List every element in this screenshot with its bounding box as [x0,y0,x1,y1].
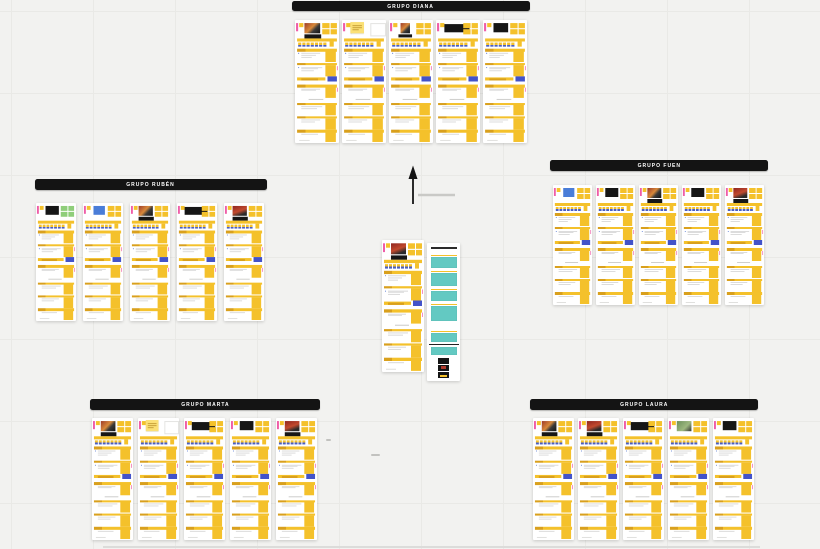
sticky-note[interactable] [155,212,161,217]
sticky-note[interactable] [709,229,718,241]
sticky-note[interactable] [513,65,523,77]
sticky-note[interactable] [205,310,215,320]
sticky-note[interactable] [330,29,337,34]
sticky-note[interactable] [656,421,662,426]
testing-board[interactable] [533,418,574,540]
sticky-note[interactable] [117,427,123,432]
teal-idea-card[interactable] [431,333,457,342]
sticky-note[interactable] [372,86,382,98]
sticky-note[interactable] [205,267,215,278]
sticky-note[interactable] [325,65,335,77]
sticky-note[interactable] [111,232,121,243]
sticky-note[interactable] [424,29,431,34]
sticky-note[interactable] [64,232,74,243]
sticky-note[interactable] [738,427,744,432]
sticky-note[interactable] [738,421,744,426]
sticky-note[interactable] [713,194,719,199]
teal-idea-card[interactable] [431,273,457,286]
screenshot-thumb[interactable] [723,421,737,430]
sticky-note[interactable] [701,421,707,426]
blue-card[interactable] [653,474,662,479]
testing-board[interactable] [276,418,317,540]
group-header[interactable]: GRUPO LAURA [530,399,758,410]
screenshot-thumb[interactable] [240,421,254,430]
sticky-note[interactable] [752,281,761,293]
sticky-note[interactable] [603,421,609,426]
sticky-note[interactable] [701,427,707,432]
sticky-note[interactable] [68,212,74,217]
sticky-note[interactable] [252,267,262,278]
blue-card[interactable] [710,240,719,245]
sticky-note[interactable] [120,448,130,460]
sticky-note[interactable] [693,421,699,426]
teal-idea-card[interactable] [431,306,457,321]
sticky-note[interactable] [68,206,74,211]
sticky-note[interactable] [117,421,123,426]
sticky-note[interactable] [217,427,223,432]
sticky-note[interactable] [510,29,517,34]
sticky-note[interactable] [606,528,616,538]
sticky-note[interactable] [252,232,262,243]
sticky-note[interactable] [713,188,719,193]
sticky-note[interactable] [111,310,121,320]
sticky-note[interactable] [252,246,262,257]
sticky-note[interactable] [202,212,208,217]
sticky-note[interactable] [561,528,571,538]
screenshot-thumb[interactable] [493,23,508,32]
screenshot-thumb[interactable] [587,421,602,431]
sticky-note[interactable] [561,448,571,460]
sticky-note[interactable] [419,50,429,62]
sticky-note[interactable] [741,462,751,474]
testing-board[interactable] [596,185,635,305]
sticky-note[interactable] [566,427,572,432]
sticky-note[interactable] [258,484,268,496]
blue-card[interactable] [743,474,752,479]
sticky-note[interactable] [258,515,268,527]
testing-board[interactable] [725,185,764,305]
sticky-note[interactable] [408,243,415,249]
sticky-note[interactable] [513,50,523,62]
sticky-note[interactable] [463,23,470,28]
sticky-note[interactable] [301,427,307,432]
sticky-note[interactable] [209,212,215,217]
sticky-note[interactable] [693,427,699,432]
sticky-note[interactable] [258,501,268,512]
sticky-note[interactable] [709,281,718,293]
sticky-note[interactable] [510,23,517,28]
sticky-note[interactable] [648,421,654,426]
sticky-note[interactable] [217,421,223,426]
sticky-note[interactable] [209,427,215,432]
sticky-note[interactable] [623,250,632,262]
sticky-note[interactable] [416,29,423,34]
sticky-note[interactable] [64,246,74,257]
sticky-note[interactable] [584,188,590,193]
sticky-note[interactable] [304,501,314,512]
group-header[interactable]: GRUPO RUBÉN [35,179,267,190]
blue-card[interactable] [260,474,269,479]
sticky-note[interactable] [325,118,335,130]
sticky-note[interactable] [561,515,571,527]
sticky-note[interactable] [205,232,215,243]
testing-board[interactable] [389,20,433,143]
blue-card[interactable] [698,474,707,479]
sticky-note[interactable] [577,188,583,193]
blue-card[interactable] [468,77,478,82]
screenshot-thumb[interactable] [285,421,300,431]
teal-idea-card[interactable] [431,347,457,355]
blue-card[interactable] [608,474,617,479]
sticky-note[interactable] [64,267,74,278]
screenshot-thumb[interactable] [542,421,557,431]
testing-board[interactable] [578,418,619,540]
sticky-note[interactable] [111,246,121,257]
sticky-note[interactable] [606,462,616,474]
testing-board[interactable] [295,20,339,143]
sticky-note[interactable] [258,528,268,538]
sticky-note[interactable] [372,65,382,77]
group-header[interactable]: GRUPO MARTA [90,399,320,410]
sticky-note[interactable] [513,131,523,141]
sticky-note[interactable] [651,462,661,474]
sticky-note[interactable] [666,267,675,278]
sticky-note[interactable] [212,448,222,460]
testing-board[interactable] [553,185,592,305]
sticky-note[interactable] [372,131,382,141]
screenshot-thumb[interactable] [391,243,406,254]
sticky-note[interactable] [115,212,121,217]
sticky-note[interactable] [561,484,571,496]
sticky-note[interactable] [606,484,616,496]
testing-board[interactable] [436,20,480,143]
testing-board[interactable] [668,418,709,540]
sticky-note[interactable] [580,215,589,227]
sticky-note[interactable] [61,212,67,217]
sticky-note[interactable] [411,288,421,301]
sticky-note[interactable] [166,484,176,496]
screenshot-thumb[interactable] [691,188,704,197]
sticky-note[interactable] [411,359,421,370]
testing-board[interactable] [83,203,123,321]
sticky-note[interactable] [513,86,523,98]
sticky-note[interactable] [558,427,564,432]
sticky-note[interactable] [706,194,712,199]
sticky-note[interactable] [463,29,470,34]
sticky-note[interactable] [249,212,255,217]
sticky-note[interactable] [158,246,168,257]
sticky-note[interactable] [258,448,268,460]
sticky-note[interactable] [696,462,706,474]
sticky-note[interactable] [561,462,571,474]
sticky-note[interactable] [620,194,626,199]
testing-board[interactable] [184,418,225,540]
sticky-note[interactable] [255,421,261,426]
sticky-note[interactable] [162,206,168,211]
sticky-note[interactable] [752,250,761,262]
sticky-note[interactable] [666,294,675,304]
sticky-note[interactable] [419,86,429,98]
sticky-note[interactable] [249,206,255,211]
sticky-note[interactable] [258,462,268,474]
sticky-note[interactable] [666,229,675,241]
testing-board[interactable] [713,418,754,540]
sticky-note[interactable] [416,23,423,28]
sticky-note[interactable] [419,118,429,130]
sticky-note[interactable] [325,50,335,62]
blue-card[interactable] [214,474,223,479]
sticky-note[interactable] [322,23,329,28]
sticky-note[interactable] [741,448,751,460]
sticky-note[interactable] [166,515,176,527]
sticky-note[interactable] [372,118,382,130]
sticky-note[interactable] [741,515,751,527]
sticky-note[interactable] [651,484,661,496]
sticky-note[interactable] [696,515,706,527]
sticky-note[interactable] [471,29,478,34]
sticky-note[interactable] [518,23,525,28]
sticky-note[interactable] [466,118,476,130]
sticky-note[interactable] [709,267,718,278]
sticky-note[interactable] [61,206,67,211]
sticky-note[interactable] [648,427,654,432]
sticky-note[interactable] [309,421,315,426]
sticky-note[interactable] [411,330,421,342]
blue-card[interactable] [122,474,131,479]
sticky-note[interactable] [166,462,176,474]
sticky-note[interactable] [623,281,632,293]
testing-board[interactable] [36,203,76,321]
sticky-note[interactable] [580,281,589,293]
sticky-note[interactable] [304,528,314,538]
blue-card[interactable] [563,474,572,479]
sticky-note[interactable] [627,194,633,199]
sticky-note[interactable] [627,188,633,193]
sticky-note[interactable] [419,131,429,141]
screenshot-thumb[interactable] [139,205,153,215]
sticky-note[interactable] [322,29,329,34]
testing-board[interactable] [130,203,170,321]
sticky-note[interactable] [752,215,761,227]
sticky-note[interactable] [209,206,215,211]
sticky-note[interactable] [756,188,762,193]
sticky-note[interactable] [651,448,661,460]
screenshot-thumb[interactable] [677,421,692,431]
sticky-note[interactable] [670,194,676,199]
sticky-note[interactable] [166,448,176,460]
mini-screenshot-thumb[interactable] [438,365,449,371]
sticky-note[interactable] [309,427,315,432]
sticky-note[interactable] [623,229,632,241]
sticky-note[interactable] [752,229,761,241]
sticky-note[interactable] [158,283,168,294]
ideas-panel[interactable] [427,243,460,381]
sticky-note[interactable] [623,294,632,304]
group-header[interactable]: GRUPO FUEN [550,160,768,171]
sticky-note[interactable] [666,215,675,227]
blue-card[interactable] [374,77,384,82]
sticky-note[interactable] [205,246,215,257]
sticky-note[interactable] [256,206,262,211]
blue-card[interactable] [65,257,74,262]
sticky-note[interactable] [166,501,176,512]
sticky-note[interactable] [513,118,523,130]
sticky-note[interactable] [696,448,706,460]
sticky-note[interactable] [212,484,222,496]
sticky-note[interactable] [120,515,130,527]
sticky-note[interactable] [120,462,130,474]
whiteboard-canvas[interactable]: GRUPO DIANAGRUPO RUBÉNGRUPO FUENGRUPO MA… [0,0,820,549]
sticky-note[interactable] [263,427,269,432]
blue-card[interactable] [253,257,262,262]
sticky-note[interactable] [209,421,215,426]
testing-board[interactable] [177,203,217,321]
sticky-note[interactable] [202,206,208,211]
connector-arrow-icon[interactable] [402,164,462,208]
sticky-note[interactable] [709,215,718,227]
sticky-note[interactable] [325,104,335,115]
sticky-note[interactable] [212,515,222,527]
sticky-note[interactable] [623,215,632,227]
sticky-note[interactable] [212,501,222,512]
sticky-note[interactable] [663,188,669,193]
sticky-note[interactable] [696,484,706,496]
sticky-note[interactable] [466,50,476,62]
sticky-note[interactable] [111,267,121,278]
sticky-note[interactable] [166,528,176,538]
sticky-note[interactable] [411,311,421,324]
sticky-note[interactable] [651,528,661,538]
teal-idea-card[interactable] [431,291,457,301]
sticky-note[interactable] [466,131,476,141]
screenshot-thumb[interactable] [101,421,116,431]
sticky-note[interactable] [419,65,429,77]
sticky-note[interactable] [749,194,755,199]
sticky-note[interactable] [741,528,751,538]
sticky-note[interactable] [566,421,572,426]
sticky-note[interactable] [663,194,669,199]
sticky-note[interactable] [108,206,114,211]
sticky-note[interactable] [580,250,589,262]
sticky-note[interactable] [108,212,114,217]
sticky-note[interactable] [603,427,609,432]
sticky-note[interactable] [64,297,74,308]
sticky-note[interactable] [558,421,564,426]
testing-board[interactable] [382,240,424,372]
testing-board[interactable] [230,418,271,540]
sticky-note[interactable] [696,528,706,538]
group-header[interactable]: GRUPO DIANA [292,1,530,11]
sticky-note[interactable] [255,427,261,432]
testing-board[interactable] [224,203,264,321]
blue-card[interactable] [159,257,168,262]
screenshot-thumb[interactable] [233,205,247,215]
sticky-note[interactable] [577,194,583,199]
sticky-note[interactable] [158,297,168,308]
blue-card[interactable] [206,257,215,262]
sticky-note[interactable] [325,131,335,141]
sticky-note[interactable] [158,267,168,278]
sticky-note[interactable] [212,528,222,538]
sticky-note[interactable] [656,427,662,432]
sticky-note[interactable] [651,515,661,527]
teal-idea-card[interactable] [431,257,457,268]
sticky-note[interactable] [746,427,752,432]
sticky-note[interactable] [111,297,121,308]
screenshot-thumb[interactable] [647,188,661,198]
sticky-note[interactable] [606,448,616,460]
sticky-note[interactable] [424,23,431,28]
blue-card[interactable] [327,77,337,82]
sticky-note[interactable] [580,267,589,278]
sticky-note[interactable] [304,515,314,527]
screenshot-thumb[interactable] [93,206,104,215]
sticky-note[interactable] [304,448,314,460]
sticky-note[interactable] [518,29,525,34]
blue-card[interactable] [515,77,525,82]
blue-card[interactable] [413,301,423,307]
sticky-note[interactable] [666,250,675,262]
screenshot-thumb[interactable] [401,23,410,33]
sticky-note[interactable] [411,345,421,358]
sticky-note[interactable] [709,250,718,262]
sticky-note[interactable] [611,421,617,426]
blue-card[interactable] [112,257,121,262]
sticky-note[interactable] [155,206,161,211]
sticky-note[interactable] [256,212,262,217]
sticky-note[interactable] [749,188,755,193]
sticky-note[interactable] [120,528,130,538]
sticky-note[interactable] [416,243,423,249]
blue-card[interactable] [168,474,177,479]
sticky-note[interactable] [606,501,616,512]
sticky-note[interactable] [471,23,478,28]
testing-board[interactable] [138,418,179,540]
sticky-note[interactable] [205,283,215,294]
sticky-note[interactable] [252,310,262,320]
sticky-note[interactable] [115,206,121,211]
sticky-note[interactable] [620,188,626,193]
testing-board[interactable] [639,185,678,305]
screenshot-thumb[interactable] [304,23,320,33]
sticky-note[interactable] [466,65,476,77]
sticky-note[interactable] [696,501,706,512]
sticky-note[interactable] [651,501,661,512]
sticky-note[interactable] [372,104,382,115]
sticky-note[interactable] [752,294,761,304]
mini-screenshot-thumb[interactable] [438,372,449,378]
sticky-note[interactable] [746,421,752,426]
sticky-note[interactable] [466,104,476,115]
sticky-note[interactable] [158,310,168,320]
sticky-note[interactable] [416,250,423,256]
testing-board[interactable] [682,185,721,305]
sticky-note[interactable] [162,212,168,217]
sticky-note[interactable] [741,484,751,496]
screenshot-thumb[interactable] [46,206,59,215]
sticky-note[interactable] [670,188,676,193]
sticky-note[interactable] [325,86,335,98]
screenshot-thumb[interactable] [733,188,747,198]
sticky-note[interactable] [408,250,415,256]
blue-card[interactable] [753,240,762,245]
sticky-note[interactable] [212,462,222,474]
sticky-note[interactable] [158,232,168,243]
sticky-note[interactable] [304,484,314,496]
sticky-note[interactable] [125,427,131,432]
sticky-note[interactable] [741,501,751,512]
sticky-note[interactable] [120,501,130,512]
